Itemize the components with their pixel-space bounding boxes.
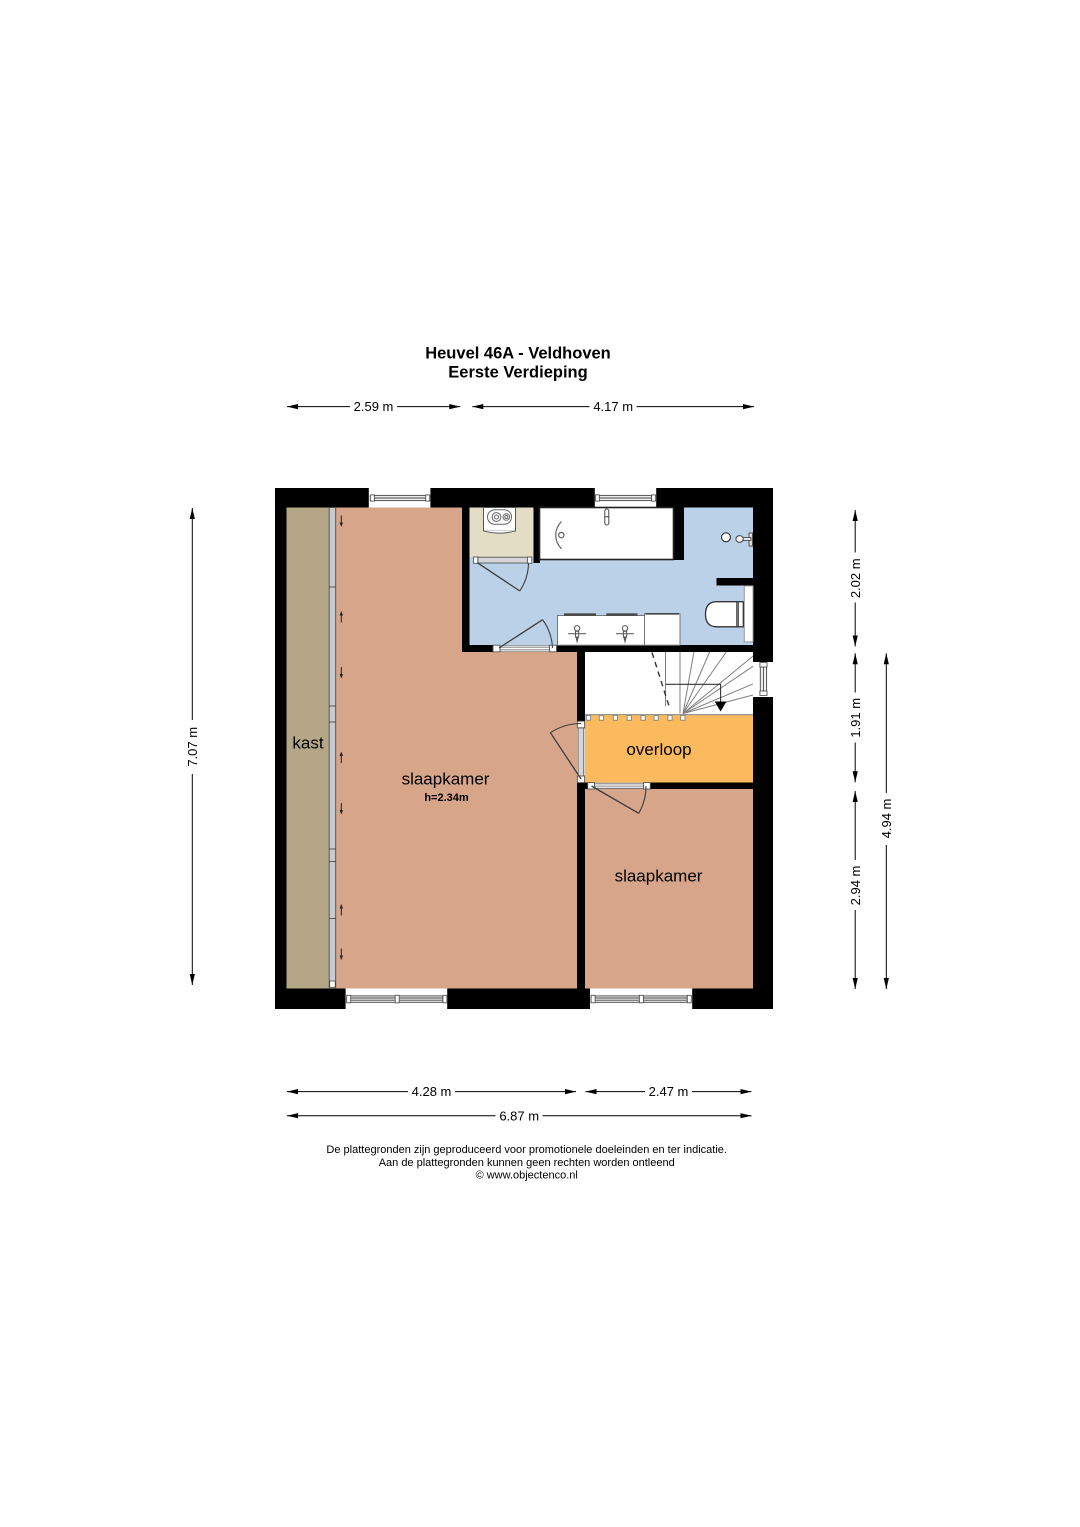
svg-text:De plattegronden zijn geproduc: De plattegronden zijn geproduceerd voor … xyxy=(326,1144,727,1156)
svg-text:6.87 m: 6.87 m xyxy=(499,1108,539,1123)
svg-text:Heuvel 46A - Veldhoven: Heuvel 46A - Veldhoven xyxy=(425,345,611,363)
svg-text:2.47 m: 2.47 m xyxy=(649,1084,689,1099)
svg-text:slaapkamer: slaapkamer xyxy=(402,769,490,788)
svg-text:4.28 m: 4.28 m xyxy=(412,1084,452,1099)
svg-text:2.59 m: 2.59 m xyxy=(354,399,394,414)
svg-text:Eerste Verdieping: Eerste Verdieping xyxy=(448,364,587,382)
svg-text:1.91 m: 1.91 m xyxy=(848,698,863,738)
svg-text:7.07 m: 7.07 m xyxy=(185,727,200,767)
svg-text:overloop: overloop xyxy=(626,740,691,759)
svg-text:kast: kast xyxy=(292,734,323,753)
svg-text:© www.objectenco.nl: © www.objectenco.nl xyxy=(476,1169,578,1181)
svg-text:slaapkamer: slaapkamer xyxy=(615,867,703,886)
svg-text:4.94 m: 4.94 m xyxy=(879,799,894,839)
svg-text:2.94 m: 2.94 m xyxy=(848,866,863,906)
svg-text:h=2.34m: h=2.34m xyxy=(424,792,469,804)
svg-text:4.17 m: 4.17 m xyxy=(593,399,633,414)
svg-text:Aan de plattegronden kunnen ge: Aan de plattegronden kunnen geen rechten… xyxy=(379,1157,675,1169)
svg-text:2.02 m: 2.02 m xyxy=(848,558,863,598)
